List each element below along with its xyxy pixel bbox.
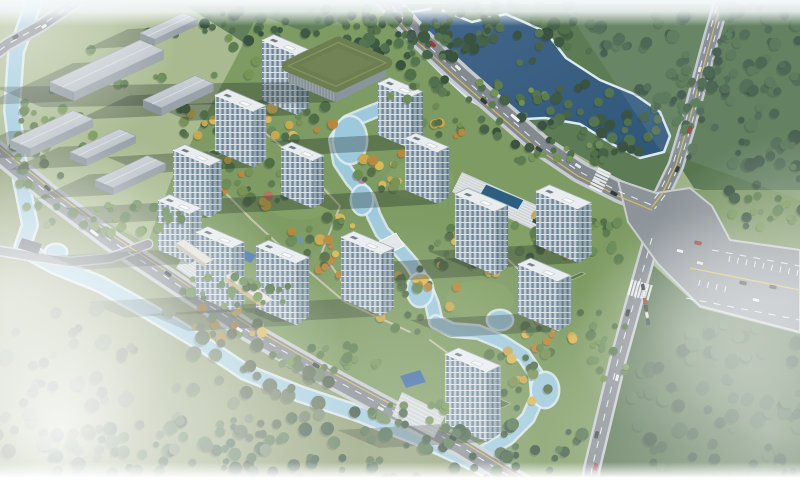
tower-side: [578, 203, 592, 263]
aerial-site-plan: [0, 0, 800, 485]
top-haze-band: [0, 0, 800, 26]
tower-side: [254, 106, 267, 168]
tower-side: [438, 147, 449, 204]
aerial-render: [0, 0, 800, 485]
tower-side: [313, 156, 324, 209]
bottom-white-band: [0, 477, 800, 485]
